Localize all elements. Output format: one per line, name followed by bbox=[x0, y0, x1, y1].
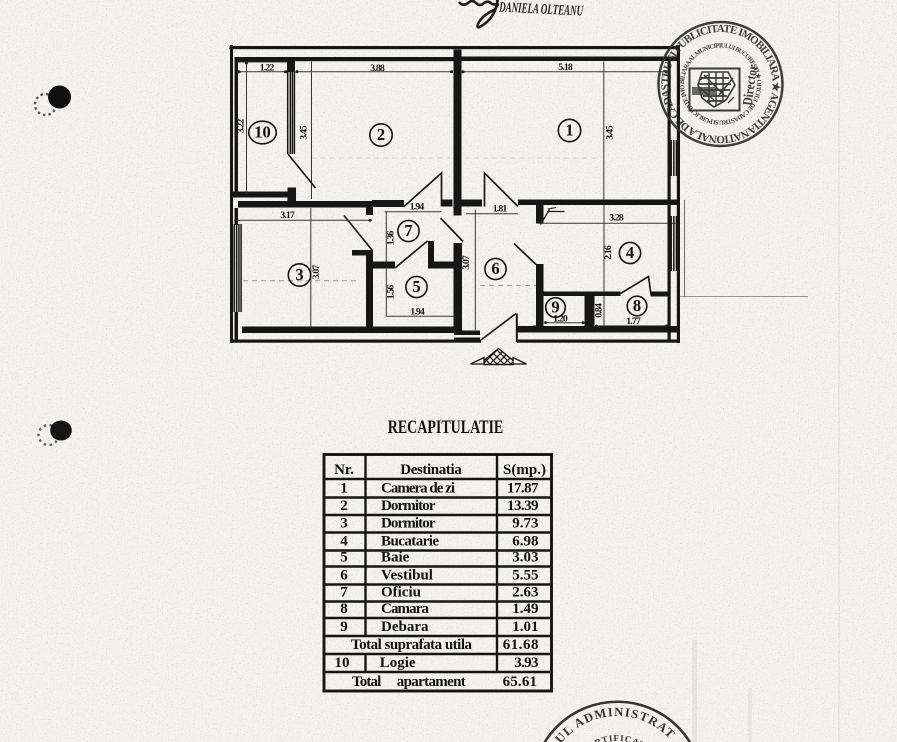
svg-text:1.49: 1.49 bbox=[512, 601, 538, 617]
svg-text:3.88: 3.88 bbox=[370, 63, 385, 74]
svg-text:Destinatia: Destinatia bbox=[400, 462, 462, 478]
svg-text:1.56: 1.56 bbox=[386, 285, 397, 300]
svg-text:6: 6 bbox=[491, 259, 499, 278]
svg-text:9: 9 bbox=[551, 298, 559, 317]
svg-text:13.39: 13.39 bbox=[507, 498, 539, 514]
svg-text:7: 7 bbox=[404, 221, 412, 240]
svg-text:3: 3 bbox=[295, 265, 303, 284]
svg-text:4: 4 bbox=[340, 534, 348, 550]
svg-text:S(mp.): S(mp.) bbox=[503, 462, 546, 478]
svg-text:1.36: 1.36 bbox=[386, 231, 397, 246]
svg-text:3.17: 3.17 bbox=[280, 210, 295, 221]
svg-text:1.01: 1.01 bbox=[512, 619, 538, 635]
svg-text:10: 10 bbox=[254, 123, 271, 142]
svg-text:61.68: 61.68 bbox=[503, 637, 539, 653]
svg-text:6.98: 6.98 bbox=[512, 534, 538, 550]
svg-text:17.87: 17.87 bbox=[507, 481, 539, 497]
svg-text:Total suprafata utila: Total suprafata utila bbox=[351, 637, 473, 653]
svg-text:7: 7 bbox=[340, 585, 348, 601]
svg-text:8: 8 bbox=[633, 296, 641, 315]
svg-text:3: 3 bbox=[340, 516, 348, 532]
svg-text:Dormitor: Dormitor bbox=[381, 498, 436, 514]
svg-text:3.45: 3.45 bbox=[605, 125, 616, 140]
svg-text:3.07: 3.07 bbox=[461, 255, 472, 270]
svg-text:2.16: 2.16 bbox=[603, 245, 614, 260]
svg-text:2: 2 bbox=[340, 498, 348, 514]
svg-text:2: 2 bbox=[377, 125, 385, 144]
svg-text:3.07: 3.07 bbox=[311, 265, 322, 280]
svg-text:3.03: 3.03 bbox=[512, 550, 538, 566]
svg-text:Bucatarie: Bucatarie bbox=[381, 534, 439, 550]
svg-text:Camara: Camara bbox=[381, 601, 430, 617]
svg-text:5.55: 5.55 bbox=[512, 568, 538, 584]
svg-text:5: 5 bbox=[412, 277, 420, 296]
svg-text:9: 9 bbox=[340, 619, 348, 635]
svg-text:3.93: 3.93 bbox=[514, 655, 538, 671]
svg-text:1.81: 1.81 bbox=[493, 204, 508, 215]
svg-text:0.84: 0.84 bbox=[594, 303, 605, 318]
svg-text:5: 5 bbox=[340, 550, 348, 566]
svg-text:3.22: 3.22 bbox=[236, 119, 247, 134]
svg-text:6: 6 bbox=[340, 568, 348, 584]
svg-text:apartament: apartament bbox=[397, 674, 466, 690]
svg-text:5.18: 5.18 bbox=[558, 62, 573, 73]
svg-text:2.63: 2.63 bbox=[512, 585, 538, 601]
svg-text:1.94: 1.94 bbox=[410, 307, 425, 318]
svg-text:Dormitor: Dormitor bbox=[381, 516, 436, 532]
svg-text:9.73: 9.73 bbox=[512, 516, 538, 532]
svg-text:1.77: 1.77 bbox=[626, 316, 641, 327]
svg-text:1.94: 1.94 bbox=[410, 202, 425, 213]
svg-text:3.45: 3.45 bbox=[299, 125, 310, 140]
svg-text:Baie: Baie bbox=[381, 550, 410, 566]
svg-text:Camera de zi: Camera de zi bbox=[381, 481, 455, 497]
svg-text:3.28: 3.28 bbox=[609, 213, 624, 224]
svg-text:10: 10 bbox=[335, 655, 350, 671]
svg-text:1: 1 bbox=[565, 121, 573, 140]
svg-text:RECAPITULATIE: RECAPITULATIE bbox=[388, 418, 504, 438]
svg-text:1.22: 1.22 bbox=[260, 63, 275, 74]
svg-text:65.61: 65.61 bbox=[503, 674, 537, 690]
svg-text:Oficiu: Oficiu bbox=[381, 585, 421, 601]
svg-text:1: 1 bbox=[340, 481, 348, 497]
svg-text:4: 4 bbox=[626, 243, 634, 262]
svg-text:Nr.: Nr. bbox=[334, 462, 354, 478]
svg-text:8: 8 bbox=[340, 601, 348, 617]
svg-text:Debara: Debara bbox=[381, 619, 429, 635]
svg-text:Vestibul: Vestibul bbox=[381, 568, 433, 584]
svg-text:Total: Total bbox=[352, 674, 381, 690]
svg-text:Logie: Logie bbox=[380, 655, 416, 671]
